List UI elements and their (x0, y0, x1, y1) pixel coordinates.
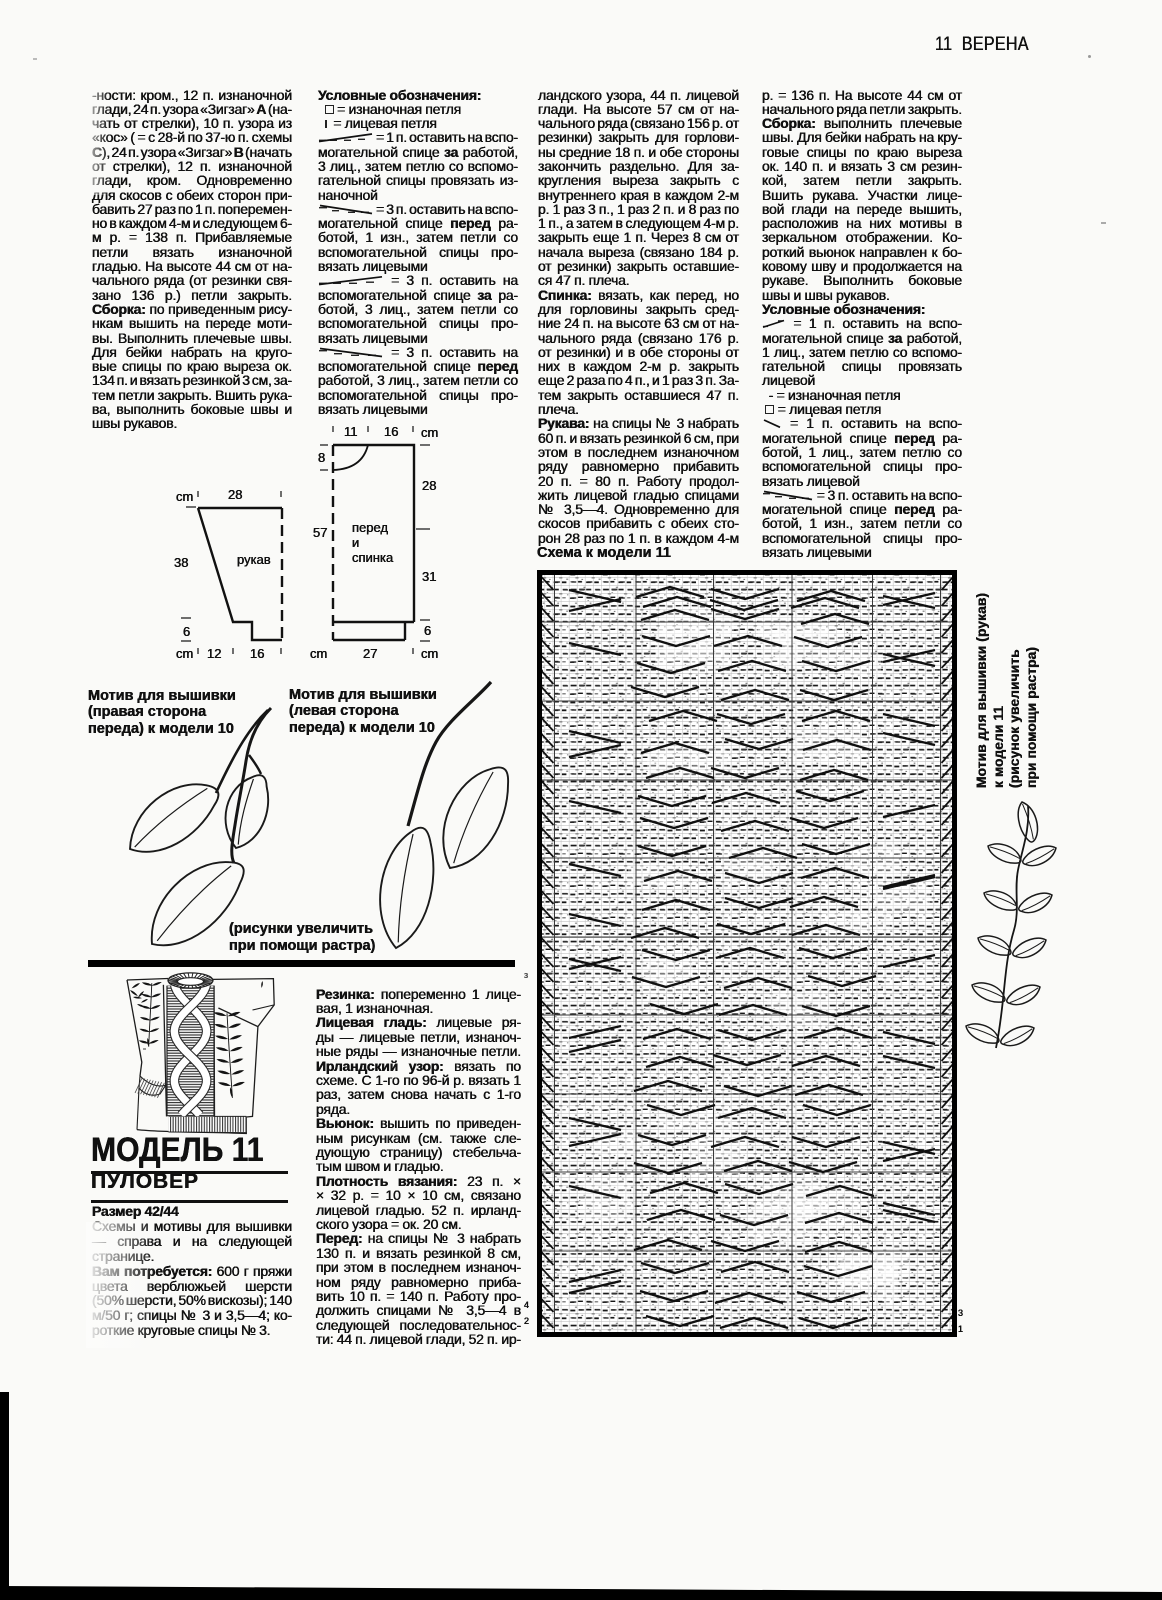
svg-text:6: 6 (183, 624, 190, 639)
svg-text:16: 16 (384, 424, 398, 439)
svg-text:и: и (352, 535, 359, 550)
svg-text:cm: cm (421, 646, 438, 661)
svg-text:cm: cm (176, 489, 193, 504)
svg-text:31: 31 (422, 569, 436, 584)
svg-text:11: 11 (344, 424, 358, 439)
svg-text:16: 16 (250, 646, 264, 661)
svg-text:28: 28 (422, 478, 436, 493)
svg-text:спинка: спинка (352, 550, 394, 565)
svg-text:6: 6 (424, 623, 431, 638)
svg-text:рукав: рукав (237, 552, 271, 567)
svg-text:57: 57 (313, 525, 327, 540)
svg-text:38: 38 (174, 555, 188, 570)
svg-text:8: 8 (318, 450, 325, 465)
svg-text:27: 27 (363, 646, 377, 661)
svg-text:cm: cm (421, 425, 438, 440)
svg-text:cm: cm (310, 646, 327, 661)
svg-text:перед: перед (352, 520, 388, 535)
svg-text:28: 28 (228, 487, 242, 502)
svg-text:12: 12 (207, 646, 221, 661)
svg-text:cm: cm (176, 646, 193, 661)
